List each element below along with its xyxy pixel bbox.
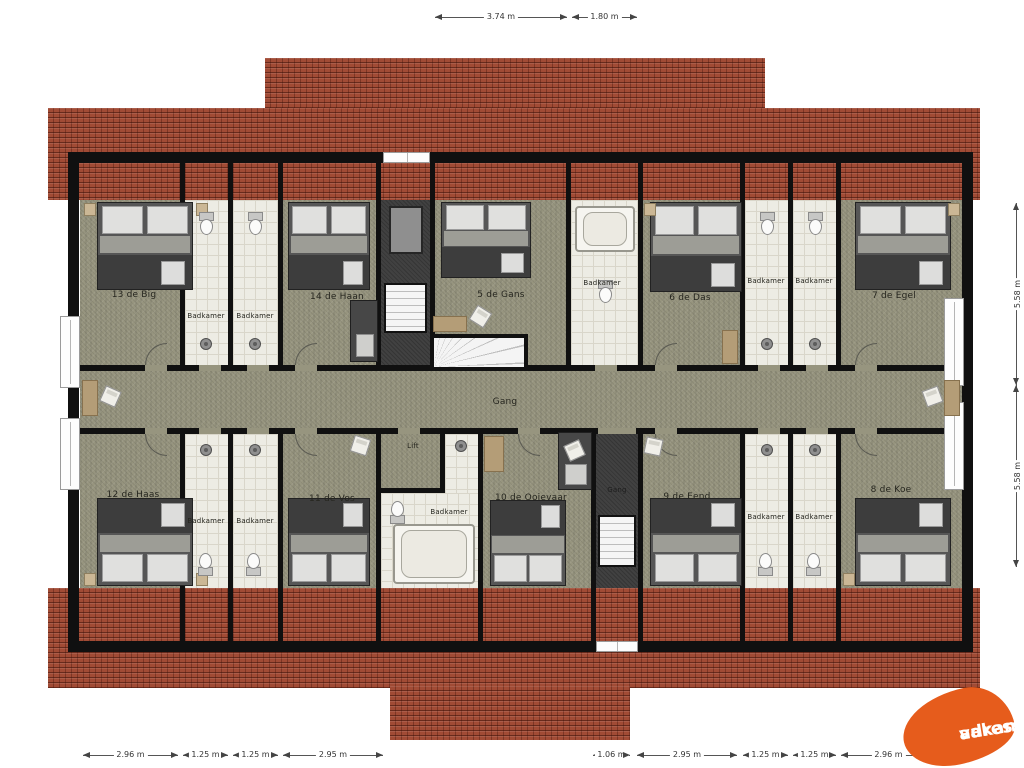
- window-right-upper: [944, 298, 964, 386]
- wall: [638, 163, 643, 371]
- toilet: [246, 552, 262, 576]
- door-opening: [595, 365, 617, 371]
- room-label: 8 de Koe: [871, 485, 912, 495]
- room-label: Badkamer: [430, 508, 467, 516]
- shower-drain: [455, 440, 467, 452]
- double-bed: [288, 498, 370, 586]
- double-bed: [288, 202, 370, 290]
- shower-drain: [761, 338, 773, 350]
- nightstand: [84, 573, 96, 586]
- dimension-bottom-6: 2.95 m: [637, 755, 737, 756]
- dimension-top-1: 3.74 m: [435, 17, 567, 18]
- toilet: [198, 552, 214, 576]
- door-bottom-gang: [596, 641, 638, 652]
- shower-drain: [809, 338, 821, 350]
- room-label: Badkamer: [583, 279, 620, 287]
- room-label: Badkamer: [236, 312, 273, 320]
- desk-unit: [350, 300, 378, 362]
- dimension-bottom-7: 1.25 m: [743, 755, 788, 756]
- double-bed: [650, 202, 742, 292]
- room-label: 5 de Gans: [477, 290, 524, 300]
- toilet: [806, 552, 822, 576]
- lift-wall-bottom: [381, 488, 445, 493]
- dimension-right-1: 5.58 m: [1016, 203, 1017, 385]
- door-opening: [398, 428, 420, 434]
- nightstand: [84, 203, 96, 216]
- toilet: [198, 212, 214, 236]
- double-bed: [97, 202, 193, 290]
- door-opening: [145, 365, 167, 371]
- window-left-lower: [60, 418, 80, 490]
- double-bed: [855, 202, 951, 290]
- shower-drain: [200, 444, 212, 456]
- shower-drain: [249, 444, 261, 456]
- room-label: Lift: [407, 442, 419, 450]
- dimension-bottom-1: 2.96 m: [83, 755, 178, 756]
- room-label: 6 de Das: [669, 293, 710, 303]
- shower-drain: [249, 338, 261, 350]
- wall: [836, 428, 841, 641]
- door-opening: [247, 365, 269, 371]
- door-opening: [655, 365, 677, 371]
- door-opening: [758, 428, 780, 434]
- elevator-car: [389, 206, 423, 254]
- bathtub: [393, 524, 475, 584]
- wall: [836, 163, 841, 371]
- wood-table: [944, 380, 960, 416]
- room-label: 12 de Haas: [107, 490, 160, 500]
- toilet: [759, 212, 775, 236]
- room-label: Badkamer: [747, 513, 784, 521]
- dimension-right-2: 5.58 m: [1016, 385, 1017, 567]
- dimension-bottom-5: 1.06 m: [593, 755, 630, 756]
- room-label: 11 de Vos: [309, 494, 355, 504]
- room-label: 13 de Big: [112, 290, 157, 300]
- room-label: Badkamer: [187, 312, 224, 320]
- vakantieadressen-logo: vakantie adressen: [902, 690, 1014, 764]
- room-label: 10 de Ooievaar: [495, 493, 567, 503]
- room-label: Badkamer: [236, 517, 273, 525]
- dimension-bottom-4: 2.95 m: [283, 755, 383, 756]
- staircase-fan: [430, 334, 528, 371]
- bathtub: [575, 206, 635, 252]
- staircase-bottom: [598, 515, 636, 567]
- dimension-bottom-8: 1.25 m: [793, 755, 836, 756]
- wood-cabinet: [484, 436, 504, 472]
- door-top-stairwell: [383, 152, 430, 163]
- door-opening: [295, 365, 317, 371]
- nightstand: [843, 573, 855, 586]
- door-opening: [806, 428, 828, 434]
- door-opening: [199, 428, 221, 434]
- door-opening: [806, 365, 828, 371]
- double-bed: [490, 500, 566, 586]
- double-bed: [441, 202, 531, 278]
- wall: [278, 163, 283, 371]
- double-bed: [97, 498, 193, 586]
- double-bed: [650, 498, 742, 586]
- wall: [376, 428, 381, 641]
- toilet: [247, 212, 263, 236]
- door-opening: [758, 365, 780, 371]
- wall: [788, 428, 793, 641]
- room-label: 7 de Egel: [872, 291, 916, 301]
- toilet: [390, 500, 406, 524]
- door-opening: [855, 365, 877, 371]
- shower-drain: [761, 444, 773, 456]
- lift-wall-right: [440, 434, 445, 493]
- shower-drain: [809, 444, 821, 456]
- corridor-gang: [80, 371, 962, 428]
- staircase-top: [384, 283, 427, 333]
- door-opening: [247, 428, 269, 434]
- room-label: Badkamer: [187, 517, 224, 525]
- wall: [228, 163, 233, 371]
- wood-table: [82, 380, 98, 416]
- dimension-bottom-2: 1.25 m: [183, 755, 228, 756]
- room-label: 14 de Haan: [310, 292, 364, 302]
- wall: [228, 428, 233, 641]
- chair: [643, 436, 663, 456]
- room-label: Badkamer: [795, 513, 832, 521]
- wood-bench: [722, 330, 738, 364]
- wood-bench: [433, 316, 467, 332]
- room-label: Badkamer: [747, 277, 784, 285]
- toilet: [807, 212, 823, 236]
- dimension-top-2: 1.80 m: [572, 17, 637, 18]
- shower-drain: [200, 338, 212, 350]
- wall: [788, 163, 793, 371]
- dimension-bottom-3: 1.25 m: [233, 755, 278, 756]
- roof-top-dormer: [265, 58, 765, 112]
- roof-bottom-dormer: [390, 686, 630, 740]
- wall: [478, 428, 483, 641]
- floorplan-canvas: 13 de Big Badkamer Badkamer 14 de Haan 5…: [0, 0, 1024, 768]
- nightstand: [948, 203, 960, 216]
- wall: [278, 428, 283, 641]
- wall: [638, 428, 643, 641]
- corridor-label: Gang: [493, 397, 518, 407]
- nightstand: [644, 203, 656, 216]
- room-label: 9 de Eend: [663, 492, 710, 502]
- double-bed: [855, 498, 951, 586]
- door-opening: [598, 428, 636, 434]
- room-label: Badkamer: [795, 277, 832, 285]
- wall: [566, 163, 571, 371]
- corridor-label: Gang: [607, 486, 626, 494]
- door-opening: [199, 365, 221, 371]
- window-left-upper: [60, 316, 80, 388]
- toilet: [758, 552, 774, 576]
